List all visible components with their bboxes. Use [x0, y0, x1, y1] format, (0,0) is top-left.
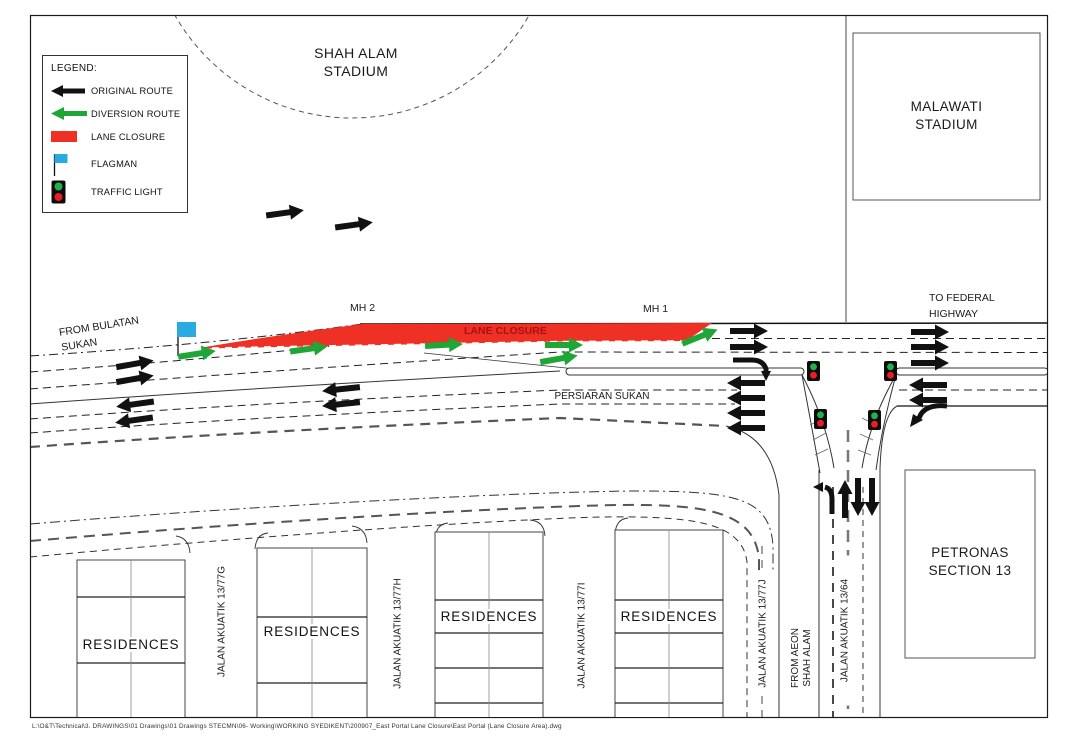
- street-label-77i: JALAN AKUATIK 13/77I: [577, 561, 588, 711]
- street-label-77j: JALAN AKUATIK 13/77J: [758, 559, 769, 709]
- petronas-label: PETRONAS SECTION 13: [905, 544, 1035, 580]
- malawati-stadium-label: MALAWATI STADIUM: [853, 98, 1040, 134]
- diversion-route-arrow-icon: [51, 107, 91, 120]
- shah-alam-stadium-label: SHAH ALAM STADIUM: [256, 44, 456, 80]
- traffic-plan-page: LEGEND: ORIGINAL ROUTE DIVERSION ROUTE L…: [0, 0, 1080, 750]
- residences-label-3: RESIDENCES: [435, 609, 543, 624]
- legend-item-flagman: FLAGMAN: [51, 152, 181, 176]
- street-label-77g: JALAN AKUATIK 13/77G: [217, 547, 228, 697]
- original-route-arrow-icon: [51, 85, 91, 97]
- to-federal-highway-label: TO FEDERAL HIGHWAY: [929, 290, 995, 322]
- residences-label-1: RESIDENCES: [77, 637, 185, 652]
- legend-item-traffic-light: TRAFFIC LIGHT: [51, 180, 181, 204]
- traffic-light-icon: [51, 180, 91, 204]
- flagman-flag-icon: [51, 151, 91, 177]
- street-label-1364: JALAN AKUATIK 13/64: [840, 556, 851, 706]
- lane-closure-text: LANE CLOSURE: [464, 325, 547, 337]
- legend-box: LEGEND: ORIGINAL ROUTE DIVERSION ROUTE L…: [42, 55, 188, 213]
- legend-item-lane-closure: LANE CLOSURE: [51, 129, 181, 144]
- street-label-from-aeon: FROM AEON SHAH ALAM: [790, 583, 814, 733]
- street-label-77h: JALAN AKUATIK 13/77H: [393, 559, 404, 709]
- residences-label-2: RESIDENCES: [257, 624, 367, 639]
- mh2-label: MH 2: [350, 302, 375, 314]
- legend-item-diversion-route: DIVERSION ROUTE: [51, 106, 181, 121]
- legend-item-original-route: ORIGINAL ROUTE: [51, 83, 181, 98]
- median-island-east: [896, 368, 1048, 375]
- lane-closure-swatch-icon: [51, 131, 77, 142]
- drawing-file-path: L:\O&T\Technical\3. DRAWINGS\01 Drawings…: [32, 723, 562, 730]
- residences-label-4: RESIDENCES: [615, 609, 723, 624]
- legend-title: LEGEND:: [51, 63, 181, 74]
- mh1-label: MH 1: [643, 303, 668, 315]
- persiaran-sukan-label: PERSIARAN SUKAN: [550, 391, 654, 402]
